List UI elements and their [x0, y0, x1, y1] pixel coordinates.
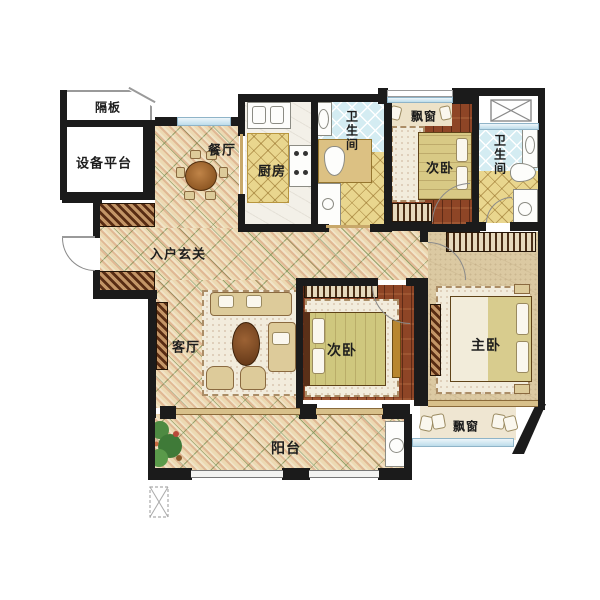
dining-chair [176, 167, 185, 178]
bay-cushion [431, 413, 446, 430]
balcony-window [309, 470, 379, 478]
wall [299, 404, 317, 419]
wall [384, 94, 392, 230]
sofa-side [268, 322, 296, 372]
burner-icon [303, 151, 308, 156]
wall [148, 468, 192, 480]
basin-oval-icon [318, 109, 329, 129]
dining-table [185, 161, 217, 191]
wall [93, 196, 100, 238]
dining-window [177, 117, 231, 126]
sink-basin-icon [252, 106, 266, 124]
tv-cabinet [156, 302, 168, 370]
bay-window-top-glass [387, 97, 453, 103]
label-equipment-platform: 设备平台 [76, 153, 132, 172]
label-kitchen: 厨房 [258, 161, 286, 180]
stove [289, 145, 312, 187]
label-living-room: 客厅 [172, 337, 200, 356]
label-bay-window-top: 飘窗 [411, 108, 437, 125]
shoe-cabinet-lower [97, 271, 155, 291]
kitchen-door [240, 134, 243, 194]
wall [238, 100, 245, 136]
label-balcony: 阳台 [271, 438, 301, 458]
pillow [516, 303, 529, 335]
balcony-sliding-door [316, 408, 383, 415]
shower-drain-icon [518, 202, 532, 216]
pipe-shaft-x-icon [149, 486, 169, 518]
master-bay-sill [428, 400, 538, 407]
basin-oval-icon [525, 136, 535, 154]
label-dining: 餐厅 [208, 140, 236, 159]
wall [472, 88, 545, 96]
wall [148, 290, 156, 418]
sofa-pillow [218, 295, 234, 308]
wall [538, 88, 545, 410]
wall [155, 117, 178, 126]
label-bay-window-master: 飘窗 [453, 418, 479, 435]
balcony-sliding-door [176, 408, 300, 415]
bay-window-master-glass [412, 438, 514, 447]
wall [148, 414, 155, 476]
headboard [304, 312, 310, 386]
wall [420, 224, 480, 232]
pillow [312, 318, 325, 344]
label-entry-foyer: 入户玄关 [150, 244, 206, 263]
nightstand [514, 284, 530, 294]
bed-bench [392, 320, 401, 378]
pillow [456, 138, 468, 162]
burner-icon [294, 170, 299, 175]
wall [311, 94, 318, 232]
bathroom-right-window [479, 123, 539, 130]
label-bathroom-right: 卫生间 [492, 134, 509, 176]
wall [296, 278, 303, 406]
wall [60, 90, 67, 124]
bay-window-top-sill [387, 90, 453, 97]
coffee-table [232, 322, 260, 366]
dining-chair [219, 167, 228, 178]
pillow [516, 341, 529, 373]
label-bedroom-top: 次卧 [426, 158, 454, 177]
wall [414, 278, 422, 406]
wall [160, 406, 176, 419]
wall [510, 222, 545, 231]
wall [472, 88, 479, 232]
label-bedroom-middle: 次卧 [327, 340, 357, 360]
wall [282, 468, 310, 480]
bedroom-top-wardrobe [390, 203, 432, 222]
wall [60, 120, 67, 199]
nightstand [514, 384, 530, 394]
entry-door-leaf [62, 236, 95, 238]
armchair [240, 366, 266, 390]
washer-drum-icon [389, 438, 404, 453]
armchair [206, 366, 234, 390]
wall [143, 120, 155, 200]
label-partition: 隔板 [95, 99, 121, 116]
shoe-cabinet-upper [98, 203, 155, 227]
wall [60, 120, 150, 127]
wall [420, 224, 428, 242]
label-master-bedroom: 主卧 [471, 335, 501, 355]
burner-icon [294, 151, 299, 156]
entry-door-arc [62, 238, 95, 271]
master-wardrobe [446, 232, 536, 252]
pillow [312, 348, 325, 374]
floor-plan: 隔板 设备平台 餐厅 厨房 卫生间 飘窗 次卧 卫生间 入户玄关 客厅 次卧 主… [0, 0, 600, 600]
dining-chair [184, 191, 195, 200]
label-bathroom-center: 卫生间 [344, 110, 361, 152]
dining-chair [205, 191, 216, 200]
shaft-x-icon [490, 99, 532, 122]
bathroom-center-door [326, 225, 370, 228]
sofa-pillow [246, 295, 262, 308]
burner-icon [303, 170, 308, 175]
dining-chair [190, 150, 201, 159]
balcony-window [191, 470, 283, 478]
sink-basin-icon [270, 106, 284, 124]
shower-drain-icon [322, 198, 334, 210]
wall [404, 414, 412, 472]
wall [238, 224, 316, 232]
master-dresser [430, 304, 441, 376]
wall [296, 278, 378, 286]
sofa-pillow [272, 332, 290, 345]
